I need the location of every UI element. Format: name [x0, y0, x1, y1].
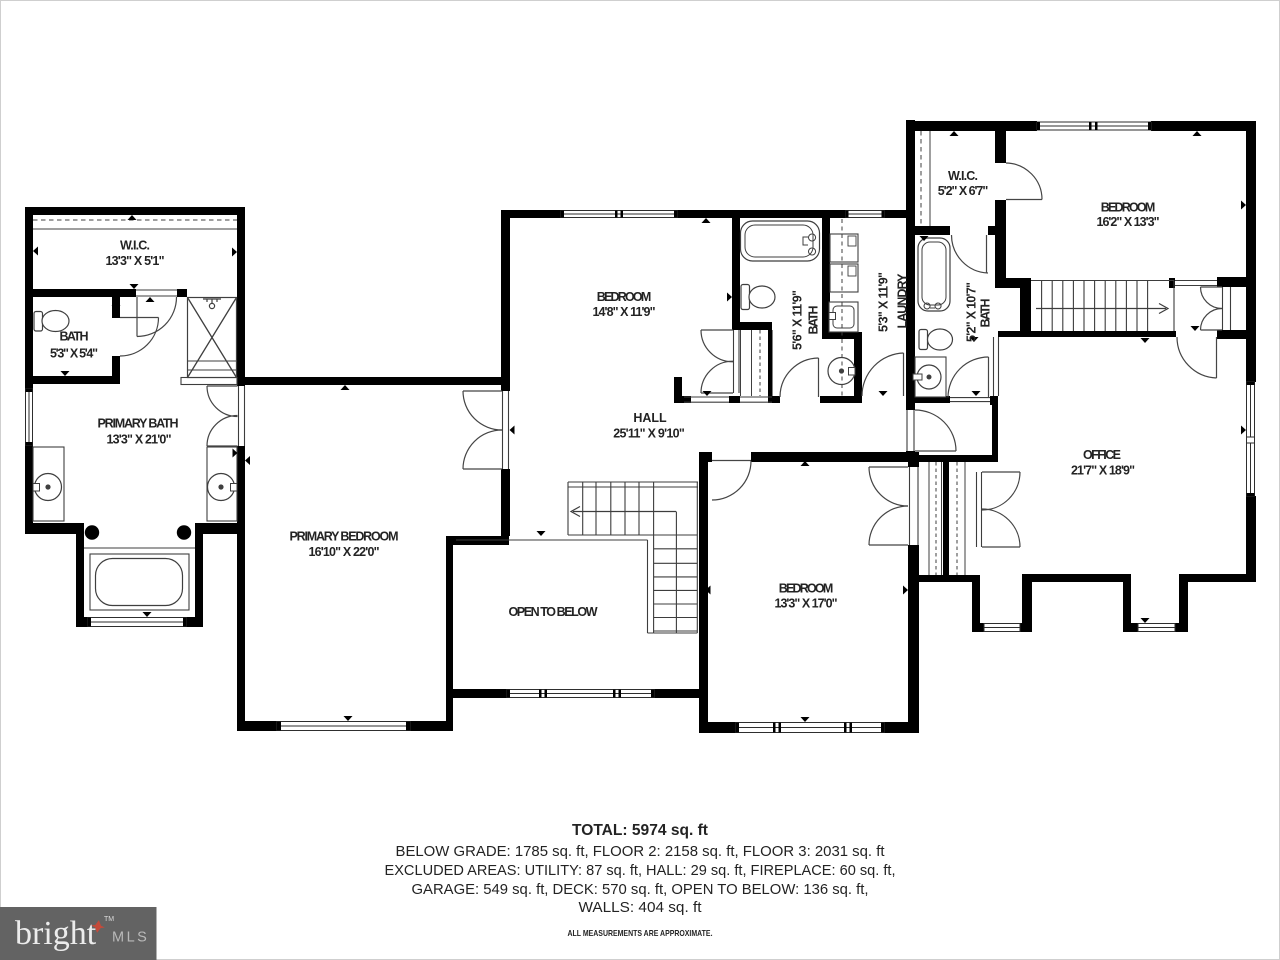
svg-text:OPEN TO BELOW: OPEN TO BELOW	[509, 605, 598, 619]
svg-text:13'3" X 5'1": 13'3" X 5'1"	[106, 254, 165, 268]
svg-text:BATH: BATH	[60, 330, 89, 344]
svg-text:BEDROOM: BEDROOM	[779, 582, 834, 596]
svg-text:16'10" X 22'0": 16'10" X 22'0"	[309, 545, 380, 559]
svg-text:14'8" X 11'9": 14'8" X 11'9"	[593, 305, 656, 319]
svg-text:13'3" X 17'0": 13'3" X 17'0"	[775, 597, 838, 611]
svg-text:MLS: MLS	[112, 930, 149, 946]
svg-text:BATH: BATH	[979, 299, 993, 328]
svg-text:BELOW GRADE: 1785 sq. ft, FLOO: BELOW GRADE: 1785 sq. ft, FLOOR 2: 2158 …	[396, 843, 886, 860]
svg-text:21'7" X 18'9": 21'7" X 18'9"	[1071, 464, 1135, 478]
svg-text:5'3" X 5'4": 5'3" X 5'4"	[50, 347, 98, 361]
svg-text:GARAGE: 549 sq. ft, DECK: 570: GARAGE: 549 sq. ft, DECK: 570 sq. ft, OP…	[412, 881, 869, 898]
svg-text:BEDROOM: BEDROOM	[1101, 201, 1156, 215]
svg-text:16'2" X 13'3": 16'2" X 13'3"	[1097, 215, 1160, 229]
svg-text:W.I.C.: W.I.C.	[948, 169, 978, 183]
svg-text:TM: TM	[104, 916, 114, 923]
svg-text:HALL: HALL	[633, 411, 667, 425]
svg-text:5'2" X 6'7": 5'2" X 6'7"	[938, 184, 989, 198]
svg-text:WALLS: 404 sq. ft: WALLS: 404 sq. ft	[579, 899, 703, 916]
svg-text:OFFICE: OFFICE	[1083, 448, 1121, 462]
svg-text:13'3" X 21'0": 13'3" X 21'0"	[107, 433, 172, 447]
svg-text:BEDROOM: BEDROOM	[597, 290, 652, 304]
svg-text:25'11" X 9'10": 25'11" X 9'10"	[613, 427, 685, 441]
svg-text:bright: bright	[15, 915, 97, 952]
svg-text:LAUNDRY: LAUNDRY	[896, 273, 910, 329]
svg-text:5'3" X 11'9": 5'3" X 11'9"	[877, 272, 891, 332]
svg-text:PRIMARY BATH: PRIMARY BATH	[98, 417, 179, 431]
svg-text:ALL MEASUREMENTS ARE APPROXIMA: ALL MEASUREMENTS ARE APPROXIMATE.	[568, 928, 713, 938]
svg-text:W.I.C.: W.I.C.	[120, 239, 150, 253]
svg-text:EXCLUDED AREAS: UTILITY: 87 sq: EXCLUDED AREAS: UTILITY: 87 sq. ft, HALL…	[385, 862, 896, 879]
svg-text:5'6" X 11'9": 5'6" X 11'9"	[791, 290, 805, 350]
svg-text:BATH: BATH	[807, 306, 821, 335]
svg-text:5'2" X 10'7": 5'2" X 10'7"	[965, 282, 979, 342]
svg-text:TOTAL: 5974 sq. ft: TOTAL: 5974 sq. ft	[572, 822, 708, 839]
svg-text:PRIMARY BEDROOM: PRIMARY BEDROOM	[290, 530, 399, 544]
